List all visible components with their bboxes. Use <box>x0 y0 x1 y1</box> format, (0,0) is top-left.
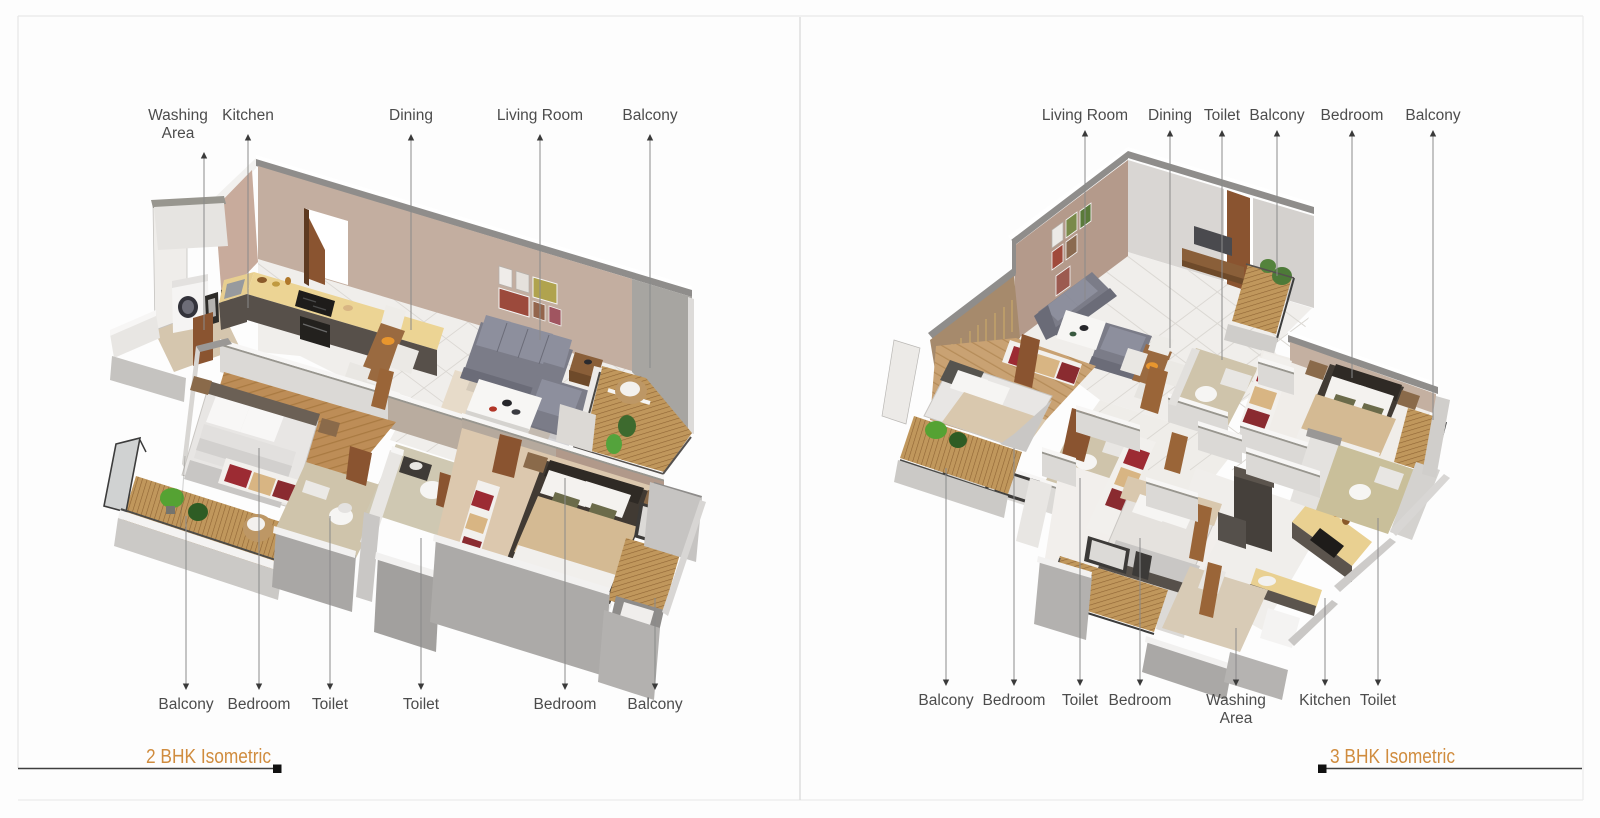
svg-text:Balcony: Balcony <box>918 692 973 709</box>
svg-text:Living Room: Living Room <box>1042 107 1128 124</box>
svg-text:Balcony: Balcony <box>1249 107 1304 124</box>
svg-text:Kitchen: Kitchen <box>222 107 274 124</box>
svg-text:Dining: Dining <box>389 107 433 124</box>
svg-text:Bedroom: Bedroom <box>1109 692 1172 709</box>
svg-text:Balcony: Balcony <box>622 107 677 124</box>
svg-text:Kitchen: Kitchen <box>1299 692 1351 709</box>
svg-text:Washing: Washing <box>148 107 208 124</box>
svg-text:Dining: Dining <box>1148 107 1192 124</box>
svg-text:2 BHK Isometric: 2 BHK Isometric <box>146 746 271 768</box>
svg-text:Bedroom: Bedroom <box>228 696 291 713</box>
svg-text:Bedroom: Bedroom <box>534 696 597 713</box>
svg-text:Balcony: Balcony <box>1405 107 1460 124</box>
svg-text:Balcony: Balcony <box>627 696 682 713</box>
svg-text:Toilet: Toilet <box>1360 692 1397 709</box>
svg-text:Balcony: Balcony <box>158 696 213 713</box>
svg-text:Toilet: Toilet <box>1204 107 1241 124</box>
svg-text:Area: Area <box>162 125 195 142</box>
svg-text:Washing: Washing <box>1206 692 1266 709</box>
svg-text:Bedroom: Bedroom <box>1321 107 1384 124</box>
svg-text:Living Room: Living Room <box>497 107 583 124</box>
svg-text:Toilet: Toilet <box>312 696 349 713</box>
svg-text:Bedroom: Bedroom <box>983 692 1046 709</box>
svg-text:Toilet: Toilet <box>403 696 440 713</box>
svg-text:Toilet: Toilet <box>1062 692 1099 709</box>
svg-text:Area: Area <box>1220 710 1253 727</box>
svg-text:3 BHK Isometric: 3 BHK Isometric <box>1330 746 1455 768</box>
